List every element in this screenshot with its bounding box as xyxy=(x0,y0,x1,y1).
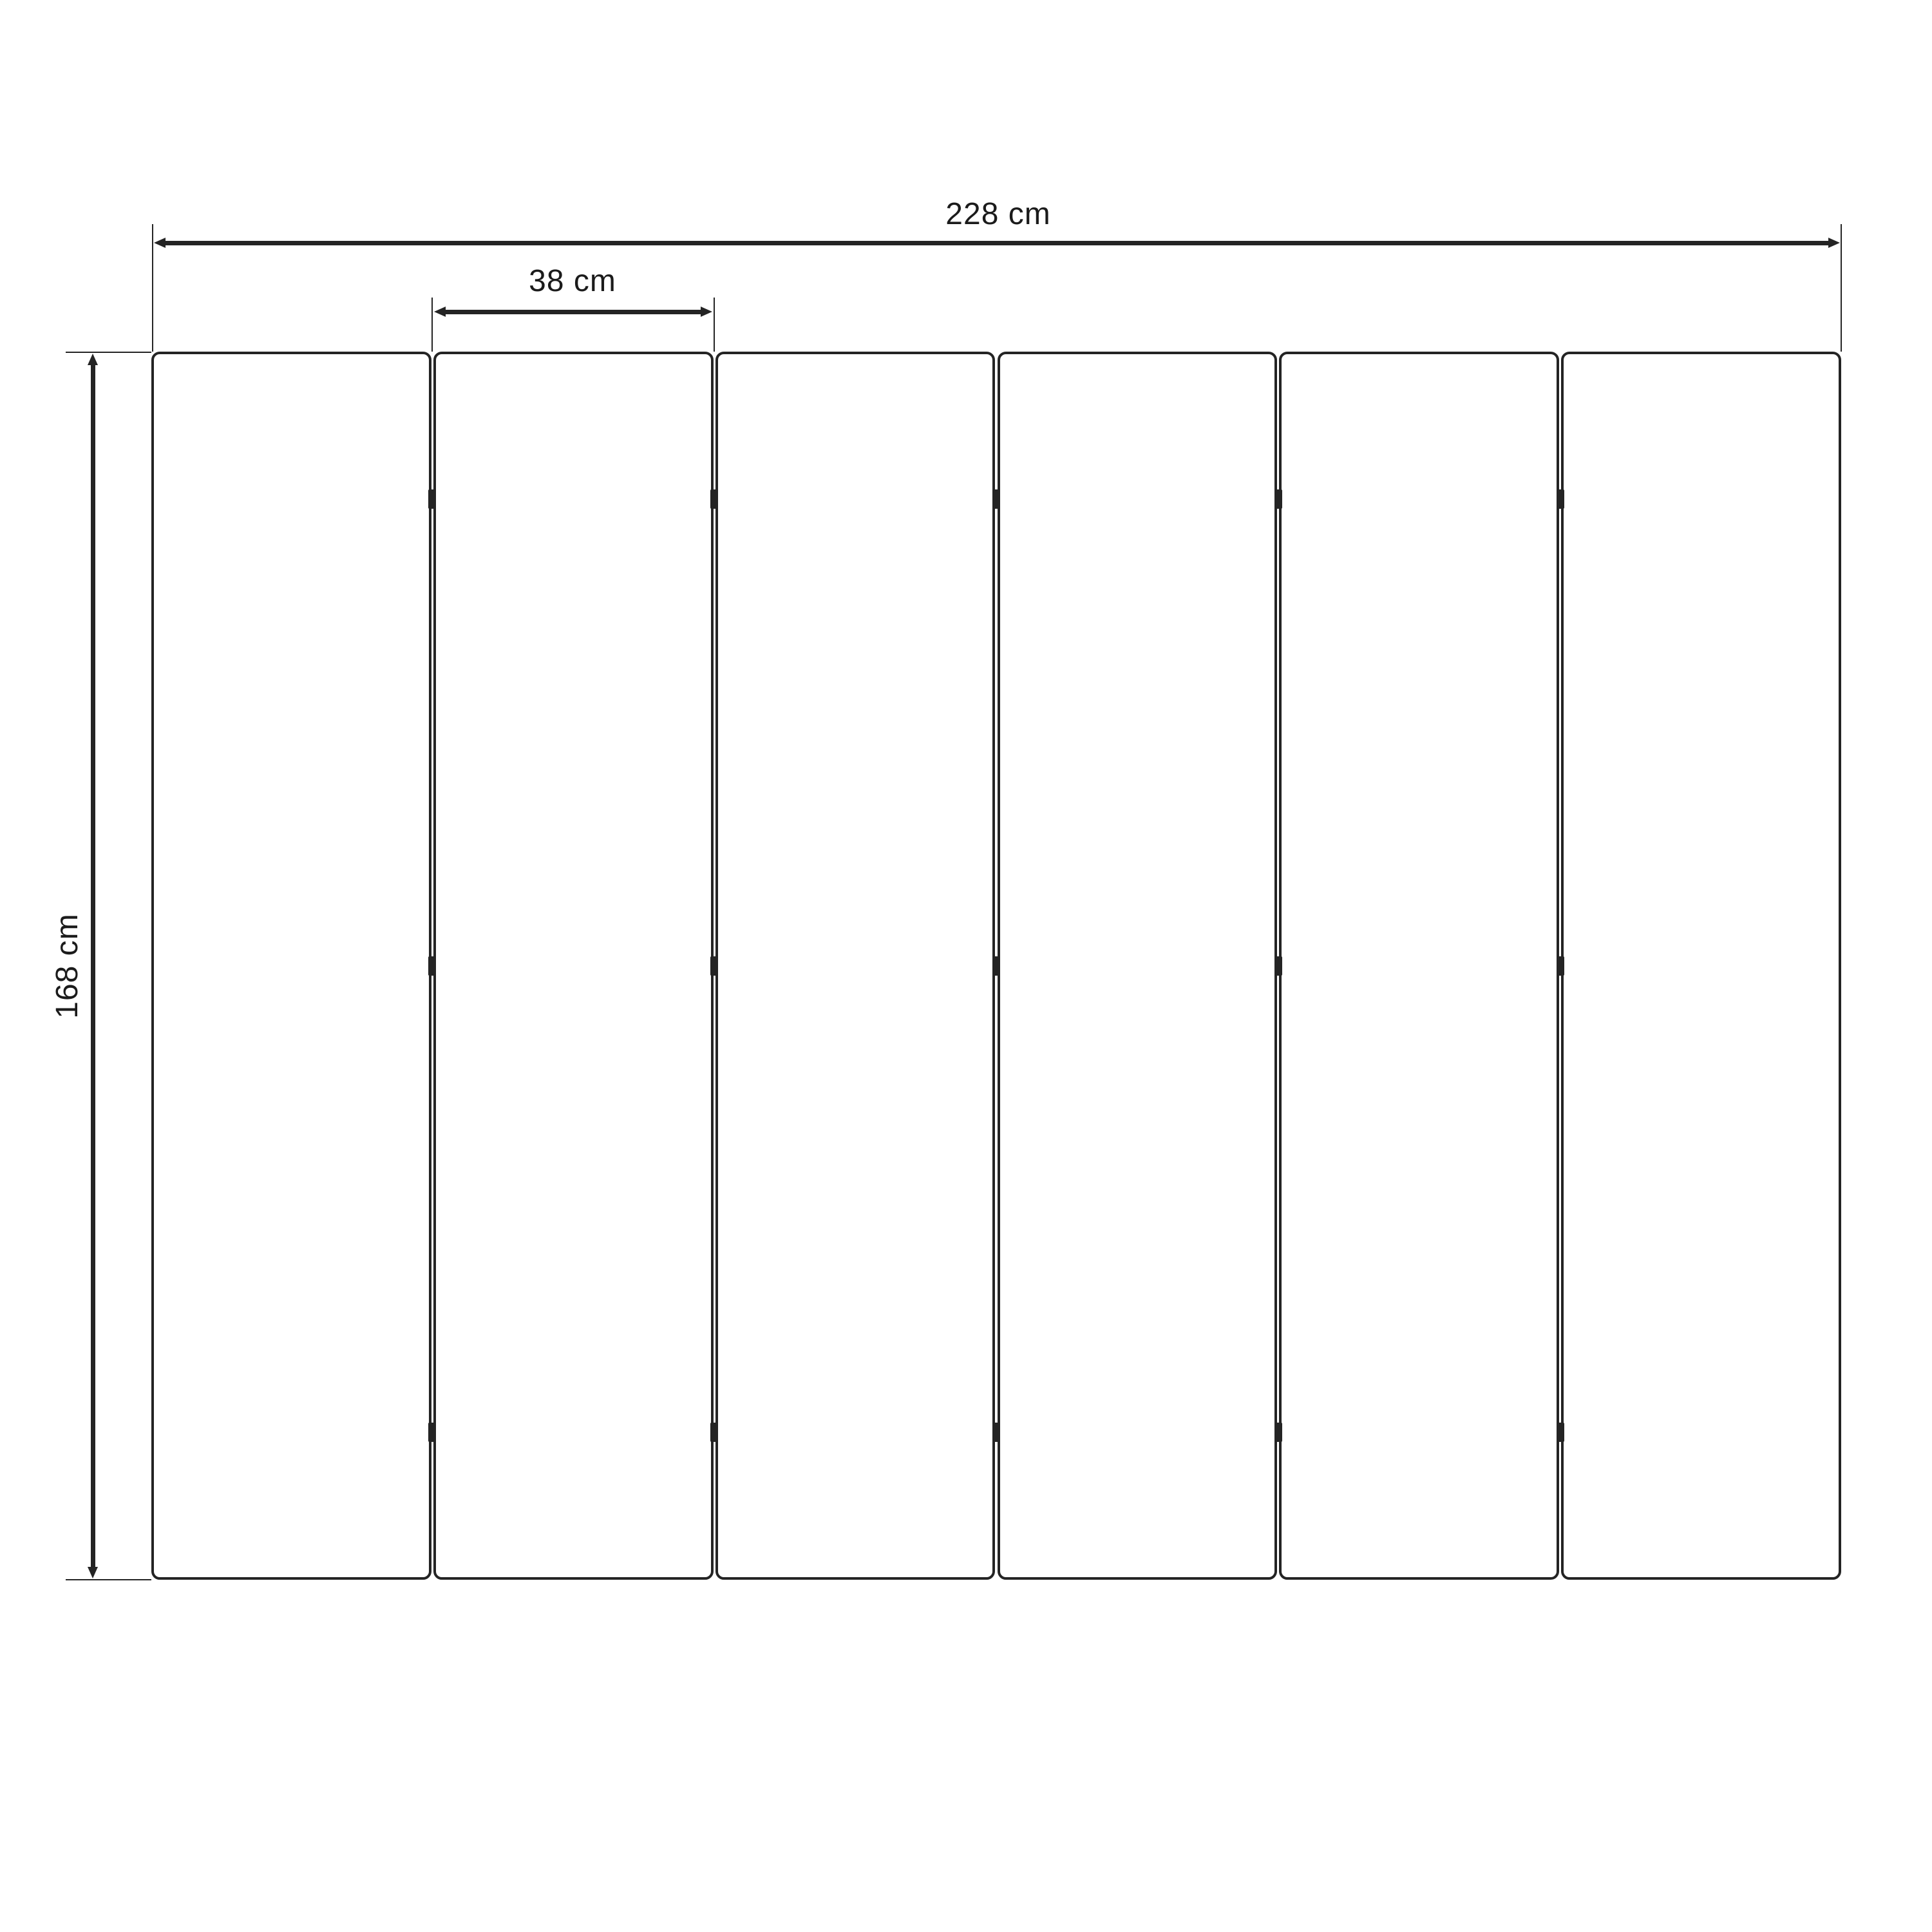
extension-line-left xyxy=(431,298,433,352)
hinge-connector-gap5-row2 xyxy=(1557,956,1564,976)
extension-line-right xyxy=(1841,224,1842,352)
arrowhead-left-icon xyxy=(434,307,446,317)
extension-line-right xyxy=(714,298,715,352)
dimension-line xyxy=(91,363,95,1569)
arrowhead-left-icon xyxy=(154,238,166,248)
panel-2 xyxy=(433,352,714,1580)
hinge-connector-gap3-row2 xyxy=(992,956,1000,976)
diagram-canvas: 228 cm 38 cm 168 cm xyxy=(0,0,1932,1932)
panel-6 xyxy=(1561,352,1841,1580)
hinge-connector-gap2-row3 xyxy=(710,1423,718,1442)
dimension-height-label: 168 cm xyxy=(52,837,84,1095)
hinge-connector-gap3-row3 xyxy=(992,1423,1000,1442)
hinge-connector-gap3-row1 xyxy=(992,489,1000,509)
arrowhead-right-icon xyxy=(1828,238,1840,248)
panel-5 xyxy=(1279,352,1559,1580)
extension-line-left xyxy=(152,224,153,352)
dimension-line xyxy=(444,310,703,314)
hinge-connector-gap5-row1 xyxy=(1557,489,1564,509)
panel-3 xyxy=(715,352,996,1580)
arrowhead-up-icon xyxy=(88,354,98,365)
hinge-connector-gap1-row2 xyxy=(428,956,436,976)
hinge-connector-gap1-row3 xyxy=(428,1423,436,1442)
hinge-connector-gap4-row1 xyxy=(1274,489,1282,509)
panel-4 xyxy=(998,352,1278,1580)
hinge-connector-gap2-row2 xyxy=(710,956,718,976)
dimension-line xyxy=(164,241,1830,245)
panel-1 xyxy=(151,352,431,1580)
arrowhead-right-icon xyxy=(701,307,712,317)
hinge-connector-gap2-row1 xyxy=(710,489,718,509)
dimension-total-width-label: 228 cm xyxy=(869,198,1127,231)
arrowhead-down-icon xyxy=(88,1567,98,1578)
hinge-connector-gap4-row2 xyxy=(1274,956,1282,976)
extension-line-top xyxy=(66,352,151,353)
extension-line-bottom xyxy=(66,1579,151,1580)
hinge-connector-gap4-row3 xyxy=(1274,1423,1282,1442)
hinge-connector-gap5-row3 xyxy=(1557,1423,1564,1442)
dimension-panel-width-label: 38 cm xyxy=(444,265,701,298)
hinge-connector-gap1-row1 xyxy=(428,489,436,509)
